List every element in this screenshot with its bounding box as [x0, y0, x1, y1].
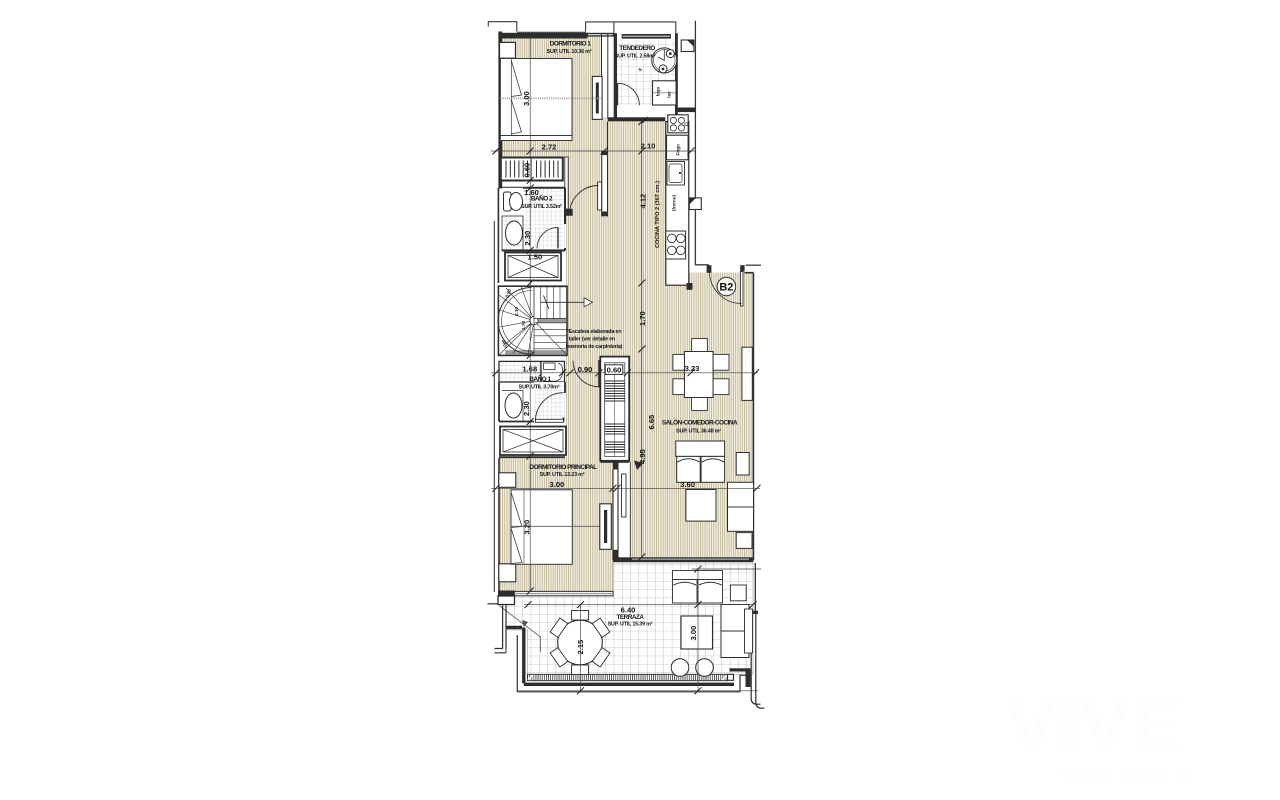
svg-text:1.68: 1.68	[522, 365, 537, 374]
svg-text:BAÑO 2: BAÑO 2	[531, 194, 553, 203]
svg-text:DORMITORIO 1: DORMITORIO 1	[550, 41, 592, 48]
svg-text:SUP. UTIL 15.39 m²: SUP. UTIL 15.39 m²	[608, 622, 653, 628]
svg-text:0.10: 0.10	[514, 307, 519, 316]
svg-text:3.00: 3.00	[549, 480, 564, 489]
svg-text:1.50: 1.50	[527, 253, 542, 262]
svg-text:VIVE: VIVE	[1006, 683, 1183, 768]
svg-text:B2: B2	[719, 281, 733, 293]
svg-text:(horno): (horno)	[672, 194, 677, 211]
svg-text:3.23: 3.23	[685, 364, 700, 373]
svg-text:2.72: 2.72	[542, 143, 557, 152]
svg-text:0.90: 0.90	[578, 365, 593, 374]
svg-text:COCINA TIPO 2 (367 cm.): COCINA TIPO 2 (367 cm.)	[655, 181, 661, 248]
svg-text:1.70: 1.70	[638, 311, 647, 326]
svg-text:taller (ver detalle en: taller (ver detalle en	[569, 337, 615, 343]
svg-text:memoria de carpintería): memoria de carpintería)	[566, 344, 623, 350]
svg-text:SALÓN-COMEDOR-COCINA: SALÓN-COMEDOR-COCINA	[662, 418, 738, 427]
svg-text:0.60: 0.60	[523, 163, 532, 178]
svg-text:3.00: 3.00	[522, 91, 531, 106]
svg-text:lav: lav	[667, 91, 672, 98]
svg-text:6.65: 6.65	[647, 414, 656, 430]
svg-text:SUP. UTIL 36.48 m²: SUP. UTIL 36.48 m²	[676, 429, 721, 435]
svg-text:TENDEDERO: TENDEDERO	[619, 45, 655, 52]
svg-text:3.00: 3.00	[689, 626, 698, 641]
svg-text:BAÑO 1: BAÑO 1	[529, 374, 551, 383]
svg-text:SUP. UTIL 2.58m²: SUP. UTIL 2.58m²	[615, 54, 656, 60]
svg-text:2.10: 2.10	[641, 142, 656, 151]
svg-text:2.30: 2.30	[523, 231, 532, 246]
svg-text:Frigo: Frigo	[676, 144, 681, 156]
svg-text:4.95: 4.95	[638, 448, 647, 464]
svg-text:SUP. UTIL 3.52m²: SUP. UTIL 3.52m²	[521, 204, 562, 210]
svg-text:1.70: 1.70	[521, 321, 526, 330]
svg-text:*Escalera elaborada en: *Escalera elaborada en	[567, 329, 622, 335]
svg-text:2.15: 2.15	[576, 639, 585, 655]
svg-text:2.30: 2.30	[522, 401, 531, 416]
svg-text:SUP. UTIL 13.23 m²: SUP. UTIL 13.23 m²	[540, 472, 585, 478]
svg-text:bajo: bajo	[656, 87, 661, 97]
svg-text:3.20: 3.20	[523, 520, 532, 535]
svg-text:TERRAZA: TERRAZA	[616, 614, 644, 621]
svg-text:4.12: 4.12	[639, 194, 648, 209]
svg-text:SUP. UTIL 10.36 m²: SUP. UTIL 10.36 m²	[547, 49, 592, 55]
svg-text:0.60: 0.60	[607, 365, 622, 374]
svg-text:DORMITORIO PRINCIPAL: DORMITORIO PRINCIPAL	[529, 464, 597, 471]
svg-text:3.60: 3.60	[680, 480, 695, 489]
svg-text:SUP. UTIL 3.70m²: SUP. UTIL 3.70m²	[519, 385, 560, 391]
